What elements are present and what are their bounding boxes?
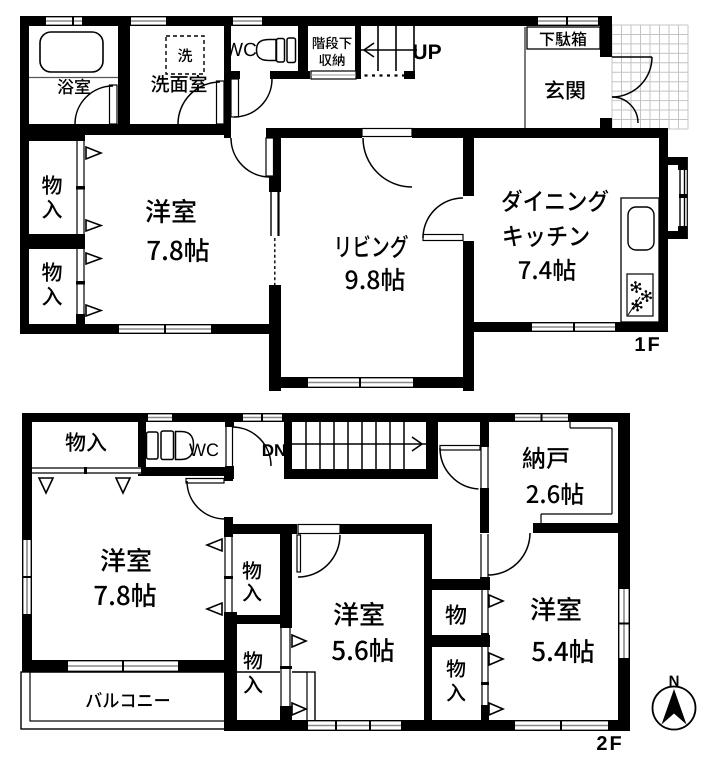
svg-text:2F: 2F	[596, 733, 623, 755]
svg-text:WC: WC	[225, 40, 257, 61]
svg-text:UP: UP	[412, 41, 441, 64]
svg-text:WC: WC	[189, 440, 219, 460]
svg-text:1F: 1F	[634, 334, 661, 356]
svg-text:DN: DN	[262, 441, 287, 460]
